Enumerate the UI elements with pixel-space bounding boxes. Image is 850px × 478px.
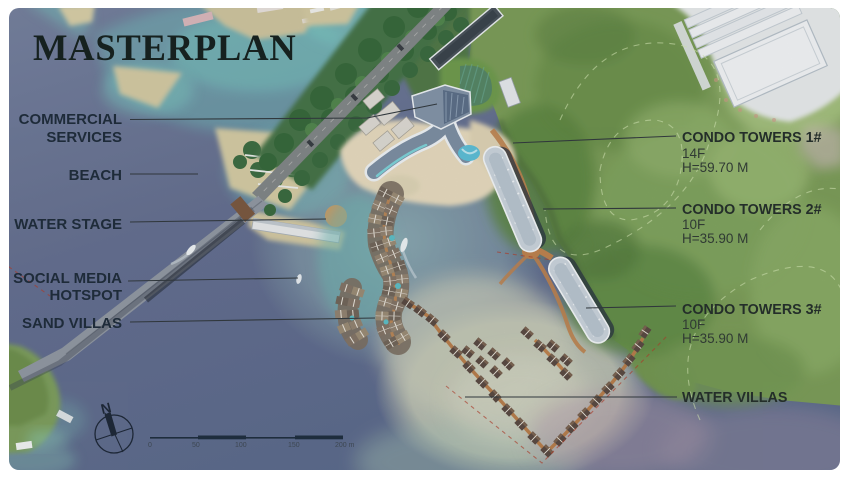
svg-text:10F: 10F (682, 217, 705, 232)
svg-text:CONDO TOWERS 1#: CONDO TOWERS 1# (682, 130, 822, 146)
svg-text:150: 150 (288, 442, 300, 449)
svg-text:200 m: 200 m (335, 442, 355, 449)
svg-text:MASTERPLAN: MASTERPLAN (33, 27, 297, 68)
svg-text:H=35.90 M: H=35.90 M (682, 231, 748, 246)
svg-text:CONDO TOWERS 3#: CONDO TOWERS 3# (682, 302, 822, 318)
svg-text:WATER VILLAS: WATER VILLAS (682, 390, 787, 406)
svg-text:HOTSPOT: HOTSPOT (49, 287, 122, 304)
svg-text:0: 0 (148, 442, 152, 449)
svg-text:SERVICES: SERVICES (46, 129, 122, 146)
svg-text:H=59.70 M: H=59.70 M (682, 160, 748, 175)
svg-text:COMMERCIAL: COMMERCIAL (19, 111, 122, 128)
svg-text:WATER STAGE: WATER STAGE (14, 216, 122, 233)
svg-text:14F: 14F (682, 146, 705, 161)
svg-text:H=35.90 M: H=35.90 M (682, 331, 748, 346)
svg-text:50: 50 (192, 442, 200, 449)
svg-text:SAND VILLAS: SAND VILLAS (22, 315, 122, 332)
svg-text:CONDO TOWERS 2#: CONDO TOWERS 2# (682, 202, 822, 218)
svg-text:SOCIAL MEDIA: SOCIAL MEDIA (13, 270, 122, 287)
svg-text:BEACH: BEACH (69, 167, 122, 184)
svg-text:10F: 10F (682, 317, 705, 332)
svg-text:100: 100 (235, 442, 247, 449)
